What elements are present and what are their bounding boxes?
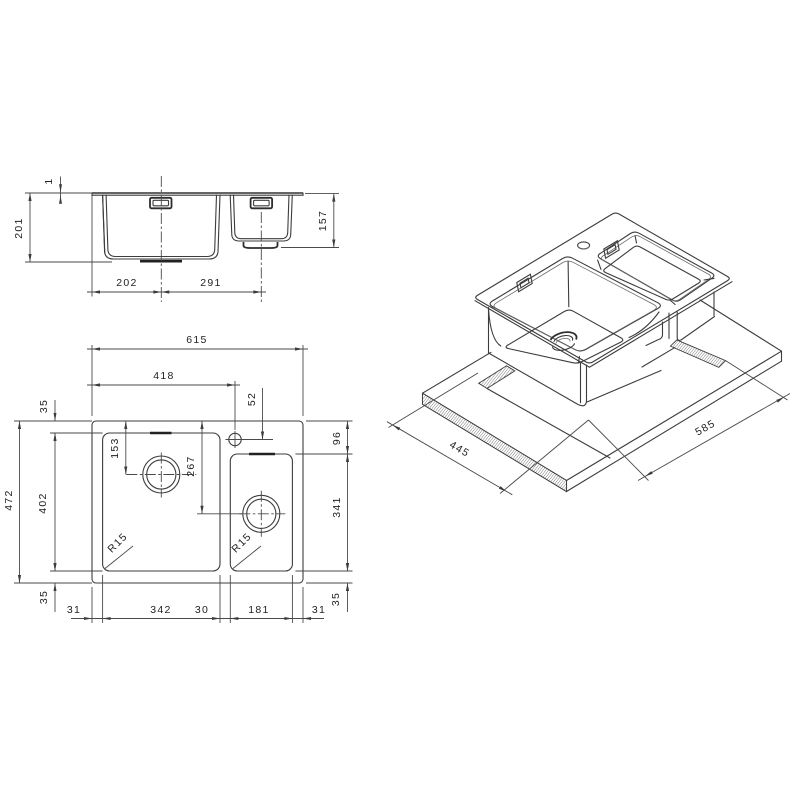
svg-text:472: 472: [3, 489, 15, 510]
svg-text:52: 52: [246, 392, 258, 406]
svg-text:153: 153: [109, 437, 121, 458]
svg-text:202: 202: [116, 277, 137, 289]
svg-text:402: 402: [37, 492, 49, 513]
svg-text:31: 31: [67, 604, 81, 616]
svg-text:35: 35: [38, 590, 50, 604]
svg-text:291: 291: [200, 277, 221, 289]
svg-text:96: 96: [331, 431, 343, 445]
svg-text:35: 35: [38, 399, 50, 413]
svg-text:31: 31: [312, 604, 326, 616]
svg-text:341: 341: [331, 496, 343, 517]
svg-text:615: 615: [186, 334, 207, 346]
svg-text:181: 181: [248, 604, 269, 616]
svg-text:418: 418: [153, 370, 174, 382]
svg-text:35: 35: [330, 592, 342, 606]
svg-text:342: 342: [150, 604, 171, 616]
svg-text:1: 1: [43, 177, 55, 184]
svg-text:201: 201: [13, 217, 25, 238]
svg-text:267: 267: [185, 455, 197, 476]
svg-text:157: 157: [317, 210, 329, 231]
svg-text:30: 30: [195, 604, 209, 616]
